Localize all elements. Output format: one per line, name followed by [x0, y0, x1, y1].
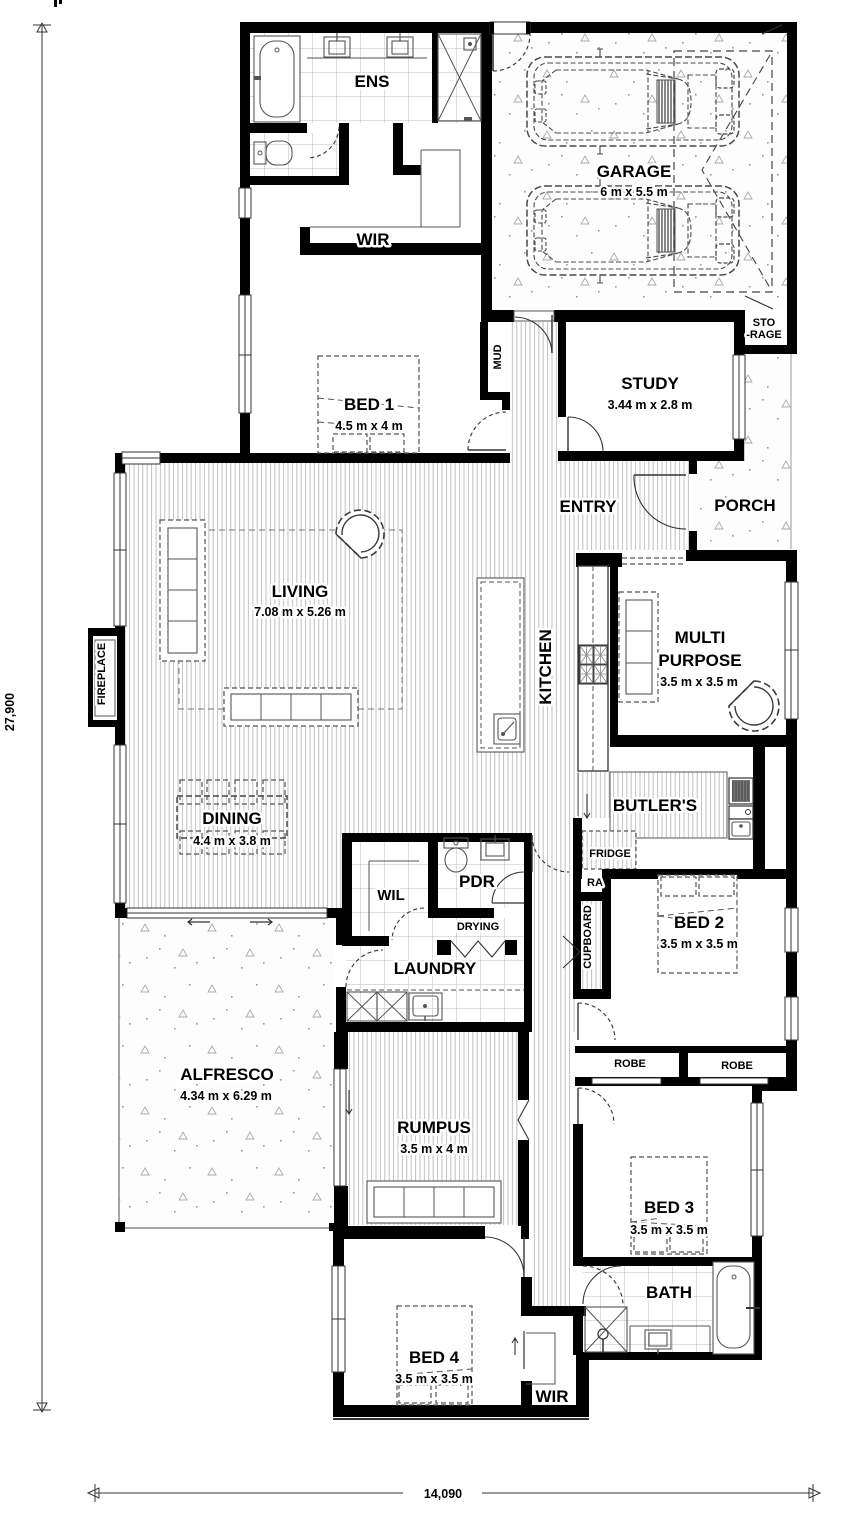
svg-text:3.5 m x 4 m: 3.5 m x 4 m [400, 1142, 467, 1156]
svg-text:3.5 m x 3.5 m: 3.5 m x 3.5 m [630, 1223, 708, 1237]
svg-text:WIR: WIR [535, 1387, 568, 1406]
svg-text:PURPOSE: PURPOSE [658, 651, 741, 670]
svg-text:WIR: WIR [356, 230, 389, 249]
svg-text:BUTLER'S: BUTLER'S [613, 796, 697, 815]
svg-text:PORCH: PORCH [714, 496, 775, 515]
svg-text:3.5 m x 3.5 m: 3.5 m x 3.5 m [660, 675, 738, 689]
svg-text:ENS: ENS [355, 72, 390, 91]
svg-text:LIVING: LIVING [272, 582, 329, 601]
svg-text:ENTRY: ENTRY [560, 497, 618, 516]
svg-text:BED 3: BED 3 [644, 1198, 694, 1217]
svg-text:BED 4: BED 4 [409, 1348, 460, 1367]
svg-text:3.5 m x 3.5 m: 3.5 m x 3.5 m [660, 937, 738, 951]
svg-text:CUPBOARD: CUPBOARD [582, 905, 594, 969]
svg-text:ROBE: ROBE [721, 1060, 753, 1072]
svg-text:4.34 m x 6.29 m: 4.34 m x 6.29 m [180, 1089, 272, 1103]
svg-text:MUD: MUD [492, 344, 504, 369]
svg-text:14,090: 14,090 [424, 1487, 462, 1501]
svg-text:GARAGE: GARAGE [597, 162, 672, 181]
svg-text:FRIDGE: FRIDGE [589, 848, 631, 860]
svg-text:LAUNDRY: LAUNDRY [394, 959, 477, 978]
svg-text:27,900: 27,900 [3, 693, 17, 731]
svg-text:ROBE: ROBE [614, 1058, 646, 1070]
svg-text:4.5 m x 4 m: 4.5 m x 4 m [335, 419, 402, 433]
svg-text:4.4 m x 3.8 m: 4.4 m x 3.8 m [193, 834, 271, 848]
svg-text:3.44 m x 2.8 m: 3.44 m x 2.8 m [608, 398, 693, 412]
svg-text:MULTI: MULTI [675, 628, 726, 647]
svg-text:BED 2: BED 2 [674, 913, 724, 932]
svg-text:WIL: WIL [377, 887, 405, 904]
svg-text:ALFRESCO: ALFRESCO [180, 1065, 274, 1084]
svg-text:3.5 m x 3.5 m: 3.5 m x 3.5 m [395, 1372, 473, 1386]
svg-text:RA: RA [587, 877, 603, 889]
svg-text:DRYING: DRYING [457, 921, 499, 933]
svg-text:-RAGE: -RAGE [746, 329, 781, 341]
svg-text:STUDY: STUDY [621, 374, 679, 393]
svg-text:BATH: BATH [646, 1283, 692, 1302]
svg-text:RUMPUS: RUMPUS [397, 1118, 471, 1137]
svg-text:STO: STO [753, 317, 776, 329]
svg-text:6 m x 5.5 m: 6 m x 5.5 m [600, 185, 667, 199]
svg-text:KITCHEN: KITCHEN [536, 629, 555, 705]
svg-text:7.08 m x 5.26 m: 7.08 m x 5.26 m [254, 605, 346, 619]
svg-text:PDR: PDR [459, 872, 495, 891]
svg-text:FIREPLACE: FIREPLACE [96, 643, 108, 705]
svg-text:DINING: DINING [202, 809, 262, 828]
svg-text:BED 1: BED 1 [344, 395, 394, 414]
